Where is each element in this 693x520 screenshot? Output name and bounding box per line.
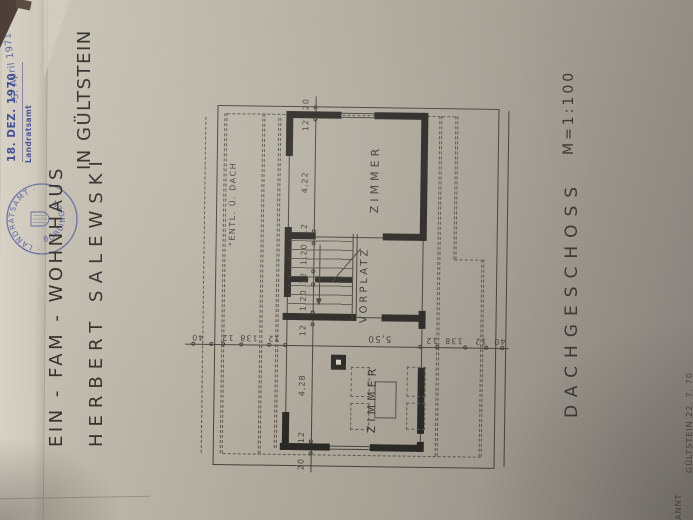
scanned-floor-plan-photo: -5. April 1971 18. DEZ. 1970 Landratsamt… [0, 0, 693, 520]
light-sheen [0, 0, 693, 520]
